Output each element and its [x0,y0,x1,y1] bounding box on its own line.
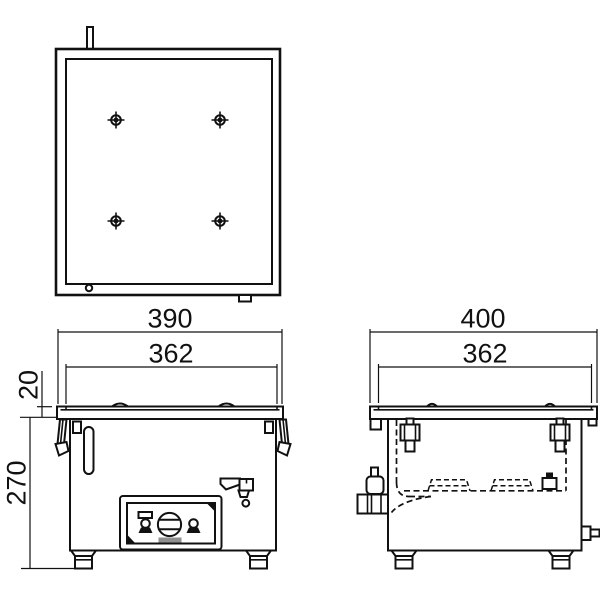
front-right-foot [246,551,271,569]
dim-label-front-overall-width: 390 [147,304,192,334]
side-drain-valve [358,468,389,514]
top-inner-rect [66,59,272,284]
dim-side-opening-depth: 362 [379,339,592,404]
faucet-outlet [239,491,250,498]
dim-label-front-lid-height: 20 [14,370,44,400]
dim-label-front-opening-width: 362 [148,339,193,369]
dim-front-opening-width: 362 [66,339,277,405]
valve-knob [367,477,384,495]
top-hinge-stub [87,27,93,49]
top-small-knob [86,285,92,291]
indicator-window [139,512,153,518]
control-knob [158,513,181,536]
dim-label-side-overall-depth: 400 [460,304,505,334]
top-bottom-tab [239,295,251,302]
faucet-drip [242,500,249,507]
dim-front-lid-height: 20 [14,370,53,417]
front-lid [57,404,283,420]
dim-label-side-opening-depth: 362 [462,339,507,369]
pilot-lamp-right [189,519,198,528]
clamp-bracket [73,422,81,434]
pilot-lamp-left [141,519,150,528]
panel-vent-slot [159,538,182,543]
lid-rear-lip [589,419,597,426]
drawing-canvas: 170 170 φ10 [0,0,600,600]
side-view: 400 362 [358,304,600,569]
top-view: 170 170 φ10 [56,27,280,302]
dim-front-body-height: 270 [2,417,79,568]
side-right-foot [549,551,574,569]
side-left-foot [392,551,417,569]
technical-drawing: 170 170 φ10 [0,0,600,600]
drain-pipe-flange [358,495,389,514]
front-left-foot [71,551,96,569]
clamp-bracket [265,422,273,434]
front-handle-slot [84,427,94,474]
side-rear-outlet [582,527,600,541]
dim-label-front-body-height: 270 [2,460,32,505]
front-view: 390 362 20 270 [2,304,291,569]
lid-front-lip [371,419,382,430]
control-panel [120,496,222,550]
